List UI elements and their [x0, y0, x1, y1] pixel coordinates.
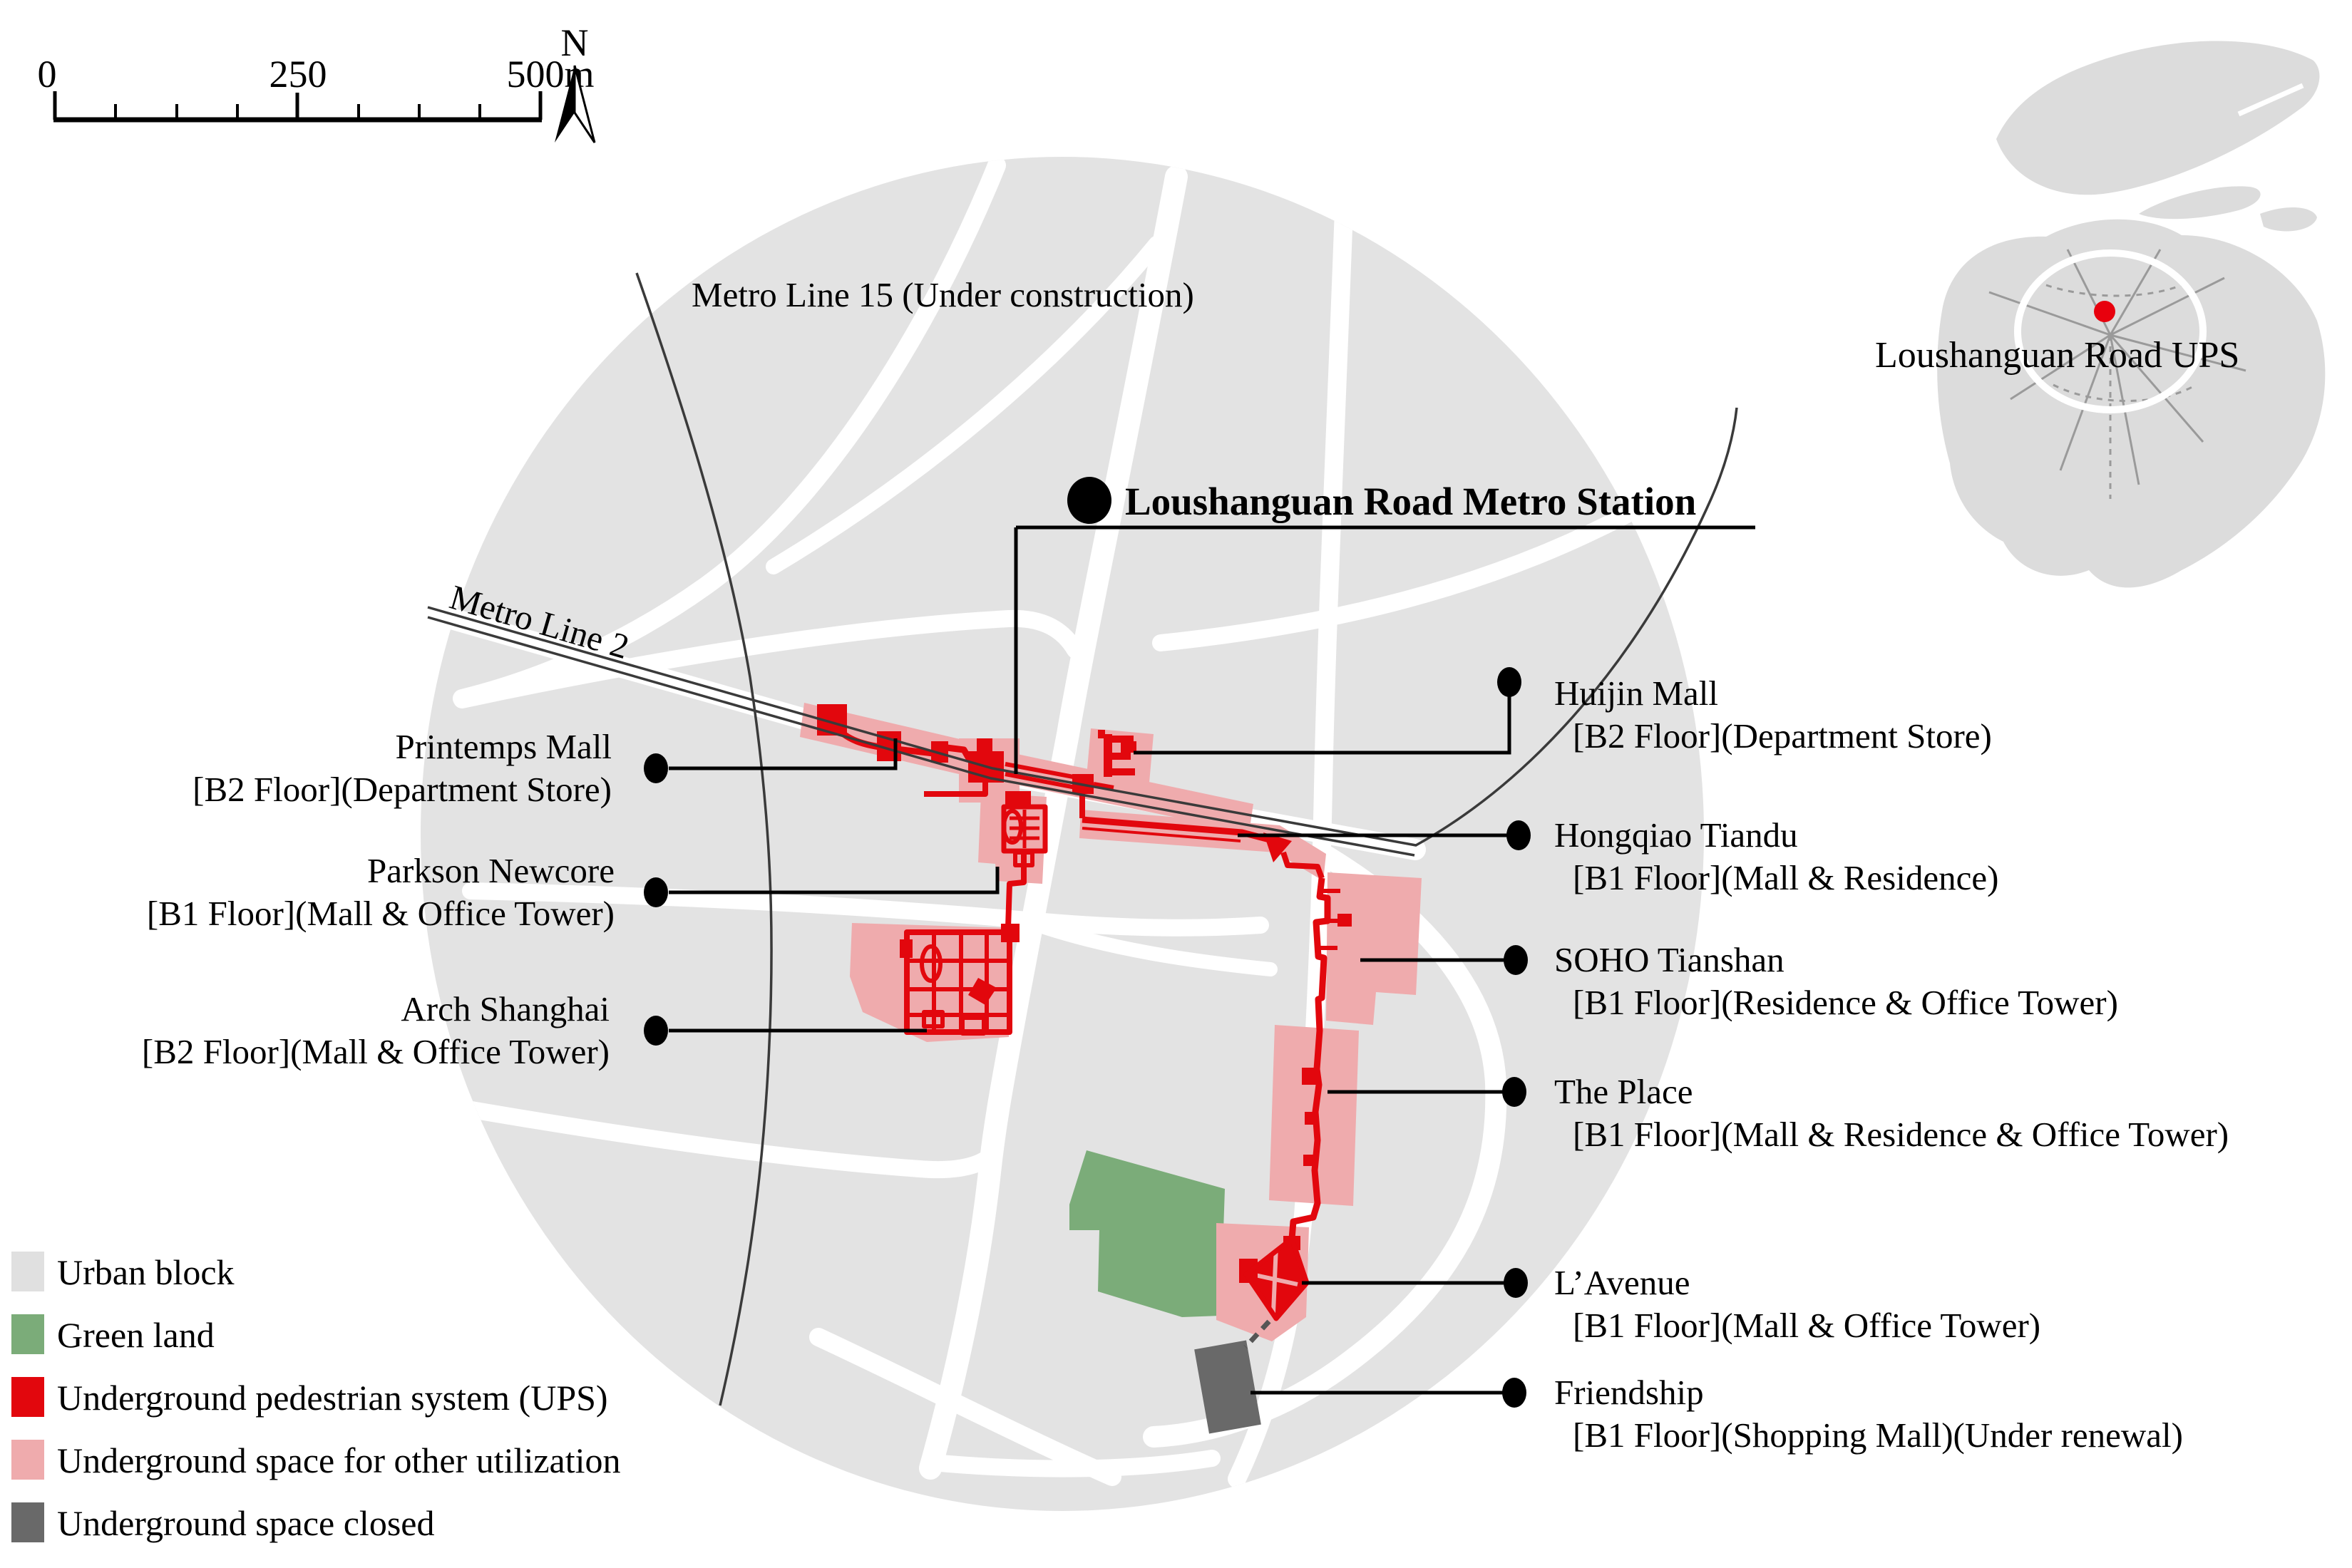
callout-bullet — [1502, 1077, 1526, 1107]
callout-name: L’Avenue — [1554, 1263, 1690, 1302]
legend-swatch-green — [11, 1314, 44, 1354]
metro-logo-letter: M — [1073, 483, 1105, 521]
callout-bullet — [644, 753, 668, 783]
legend-label: Underground space for other utilization — [57, 1440, 621, 1480]
callout-detail: [B1 Floor](Mall & Office Tower) — [1573, 1306, 2040, 1345]
hengsha-island — [2260, 207, 2317, 232]
callout-name: Parkson Newcore — [367, 851, 615, 890]
legend-swatch-closed — [11, 1502, 44, 1542]
callout-name: Friendship — [1554, 1373, 1704, 1412]
legend-label: Underground space closed — [57, 1503, 434, 1543]
legend-row-ups: Underground pedestrian system (UPS) — [11, 1377, 608, 1418]
huijin-ups — [1098, 730, 1136, 777]
callout-name: SOHO Tianshan — [1554, 940, 1784, 979]
legend-label: Green land — [57, 1315, 215, 1355]
changxing-island — [2139, 186, 2261, 219]
legend-label: Underground pedestrian system (UPS) — [57, 1378, 608, 1418]
legend-row-other: Underground space for other utilization — [11, 1440, 621, 1480]
callout-detail: [B2 Floor](Department Store) — [192, 770, 612, 809]
scale-bar: 0 250 500m — [38, 53, 595, 120]
ups-map-svg: Metro Line 15 (Under construction) Metro… — [0, 0, 2352, 1568]
scale-tick-250: 250 — [269, 53, 327, 96]
callout-bullet — [644, 1016, 668, 1046]
inset-label: Loushanguan Road UPS — [1875, 335, 2239, 376]
callout-name: Arch Shanghai — [401, 989, 610, 1028]
station-name: Loushanguan Road Metro Station — [1125, 480, 1696, 523]
legend-row-green: Green land — [11, 1314, 215, 1355]
callout-detail: [B1 Floor](Mall & Residence) — [1573, 858, 1998, 897]
callout-detail: [B2 Floor](Mall & Office Tower) — [142, 1032, 610, 1071]
main-map — [421, 157, 1737, 1511]
callout-bullet — [644, 877, 668, 907]
legend-row-closed: Underground space closed — [11, 1502, 434, 1543]
legend-label: Urban block — [57, 1252, 235, 1292]
north-label: N — [561, 21, 589, 64]
map-figure: Metro Line 15 (Under construction) Metro… — [0, 0, 2352, 1568]
callout-bullet — [1506, 820, 1531, 850]
legend-row-urban: Urban block — [11, 1252, 235, 1292]
callout-name: The Place — [1554, 1072, 1693, 1111]
callout-detail: [B1 Floor](Mall & Residence & Office Tow… — [1573, 1115, 2229, 1154]
callout-detail: [B1 Floor](Residence & Office Tower) — [1573, 983, 2118, 1022]
callout-name: Hongqiao Tiandu — [1554, 815, 1798, 855]
ups-location-dot — [2094, 301, 2115, 322]
shanghai-mainland — [1937, 220, 2325, 588]
chongming-island — [1996, 41, 2319, 195]
legend: Urban block Green land Underground pedes… — [11, 1252, 621, 1543]
legend-swatch-ups — [11, 1377, 44, 1417]
callout-bullet — [1497, 667, 1521, 697]
callout-bullet — [1504, 1268, 1528, 1298]
callout-bullet — [1502, 1378, 1526, 1408]
callout-detail: [B1 Floor](Shopping Mall)(Under renewal) — [1573, 1415, 2183, 1455]
callout-detail: [B1 Floor](Mall & Office Tower) — [147, 894, 615, 933]
callout-name: Huijin Mall — [1554, 674, 1718, 713]
callout-detail: [B2 Floor](Department Store) — [1573, 716, 1992, 755]
inset-map: Loushanguan Road UPS — [1875, 41, 2325, 588]
scale-tick-0: 0 — [38, 53, 57, 96]
legend-swatch-urban — [11, 1252, 44, 1291]
metro-line-15-label: Metro Line 15 (Under construction) — [692, 275, 1194, 314]
legend-swatch-other — [11, 1440, 44, 1480]
callout-name: Printemps Mall — [395, 727, 612, 766]
callout-bullet — [1504, 945, 1528, 975]
